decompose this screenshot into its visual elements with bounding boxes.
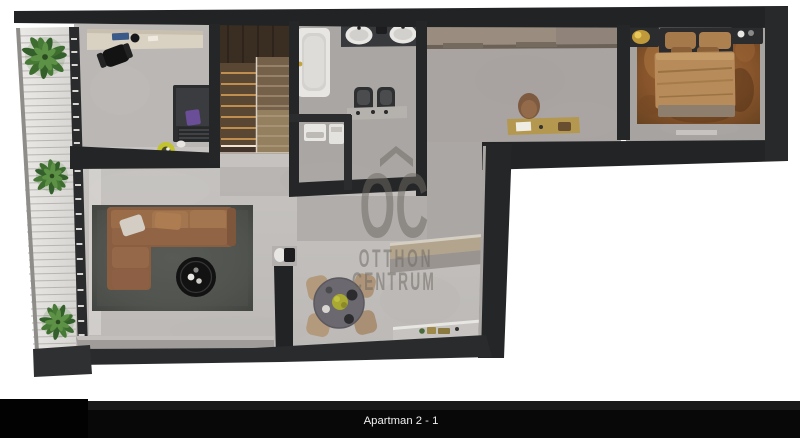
svg-text:Apartman 2 - 1: Apartman 2 - 1: [364, 415, 439, 427]
svg-text:OC: OC: [360, 155, 429, 257]
svg-text:CENTRUM: CENTRUM: [352, 269, 436, 296]
